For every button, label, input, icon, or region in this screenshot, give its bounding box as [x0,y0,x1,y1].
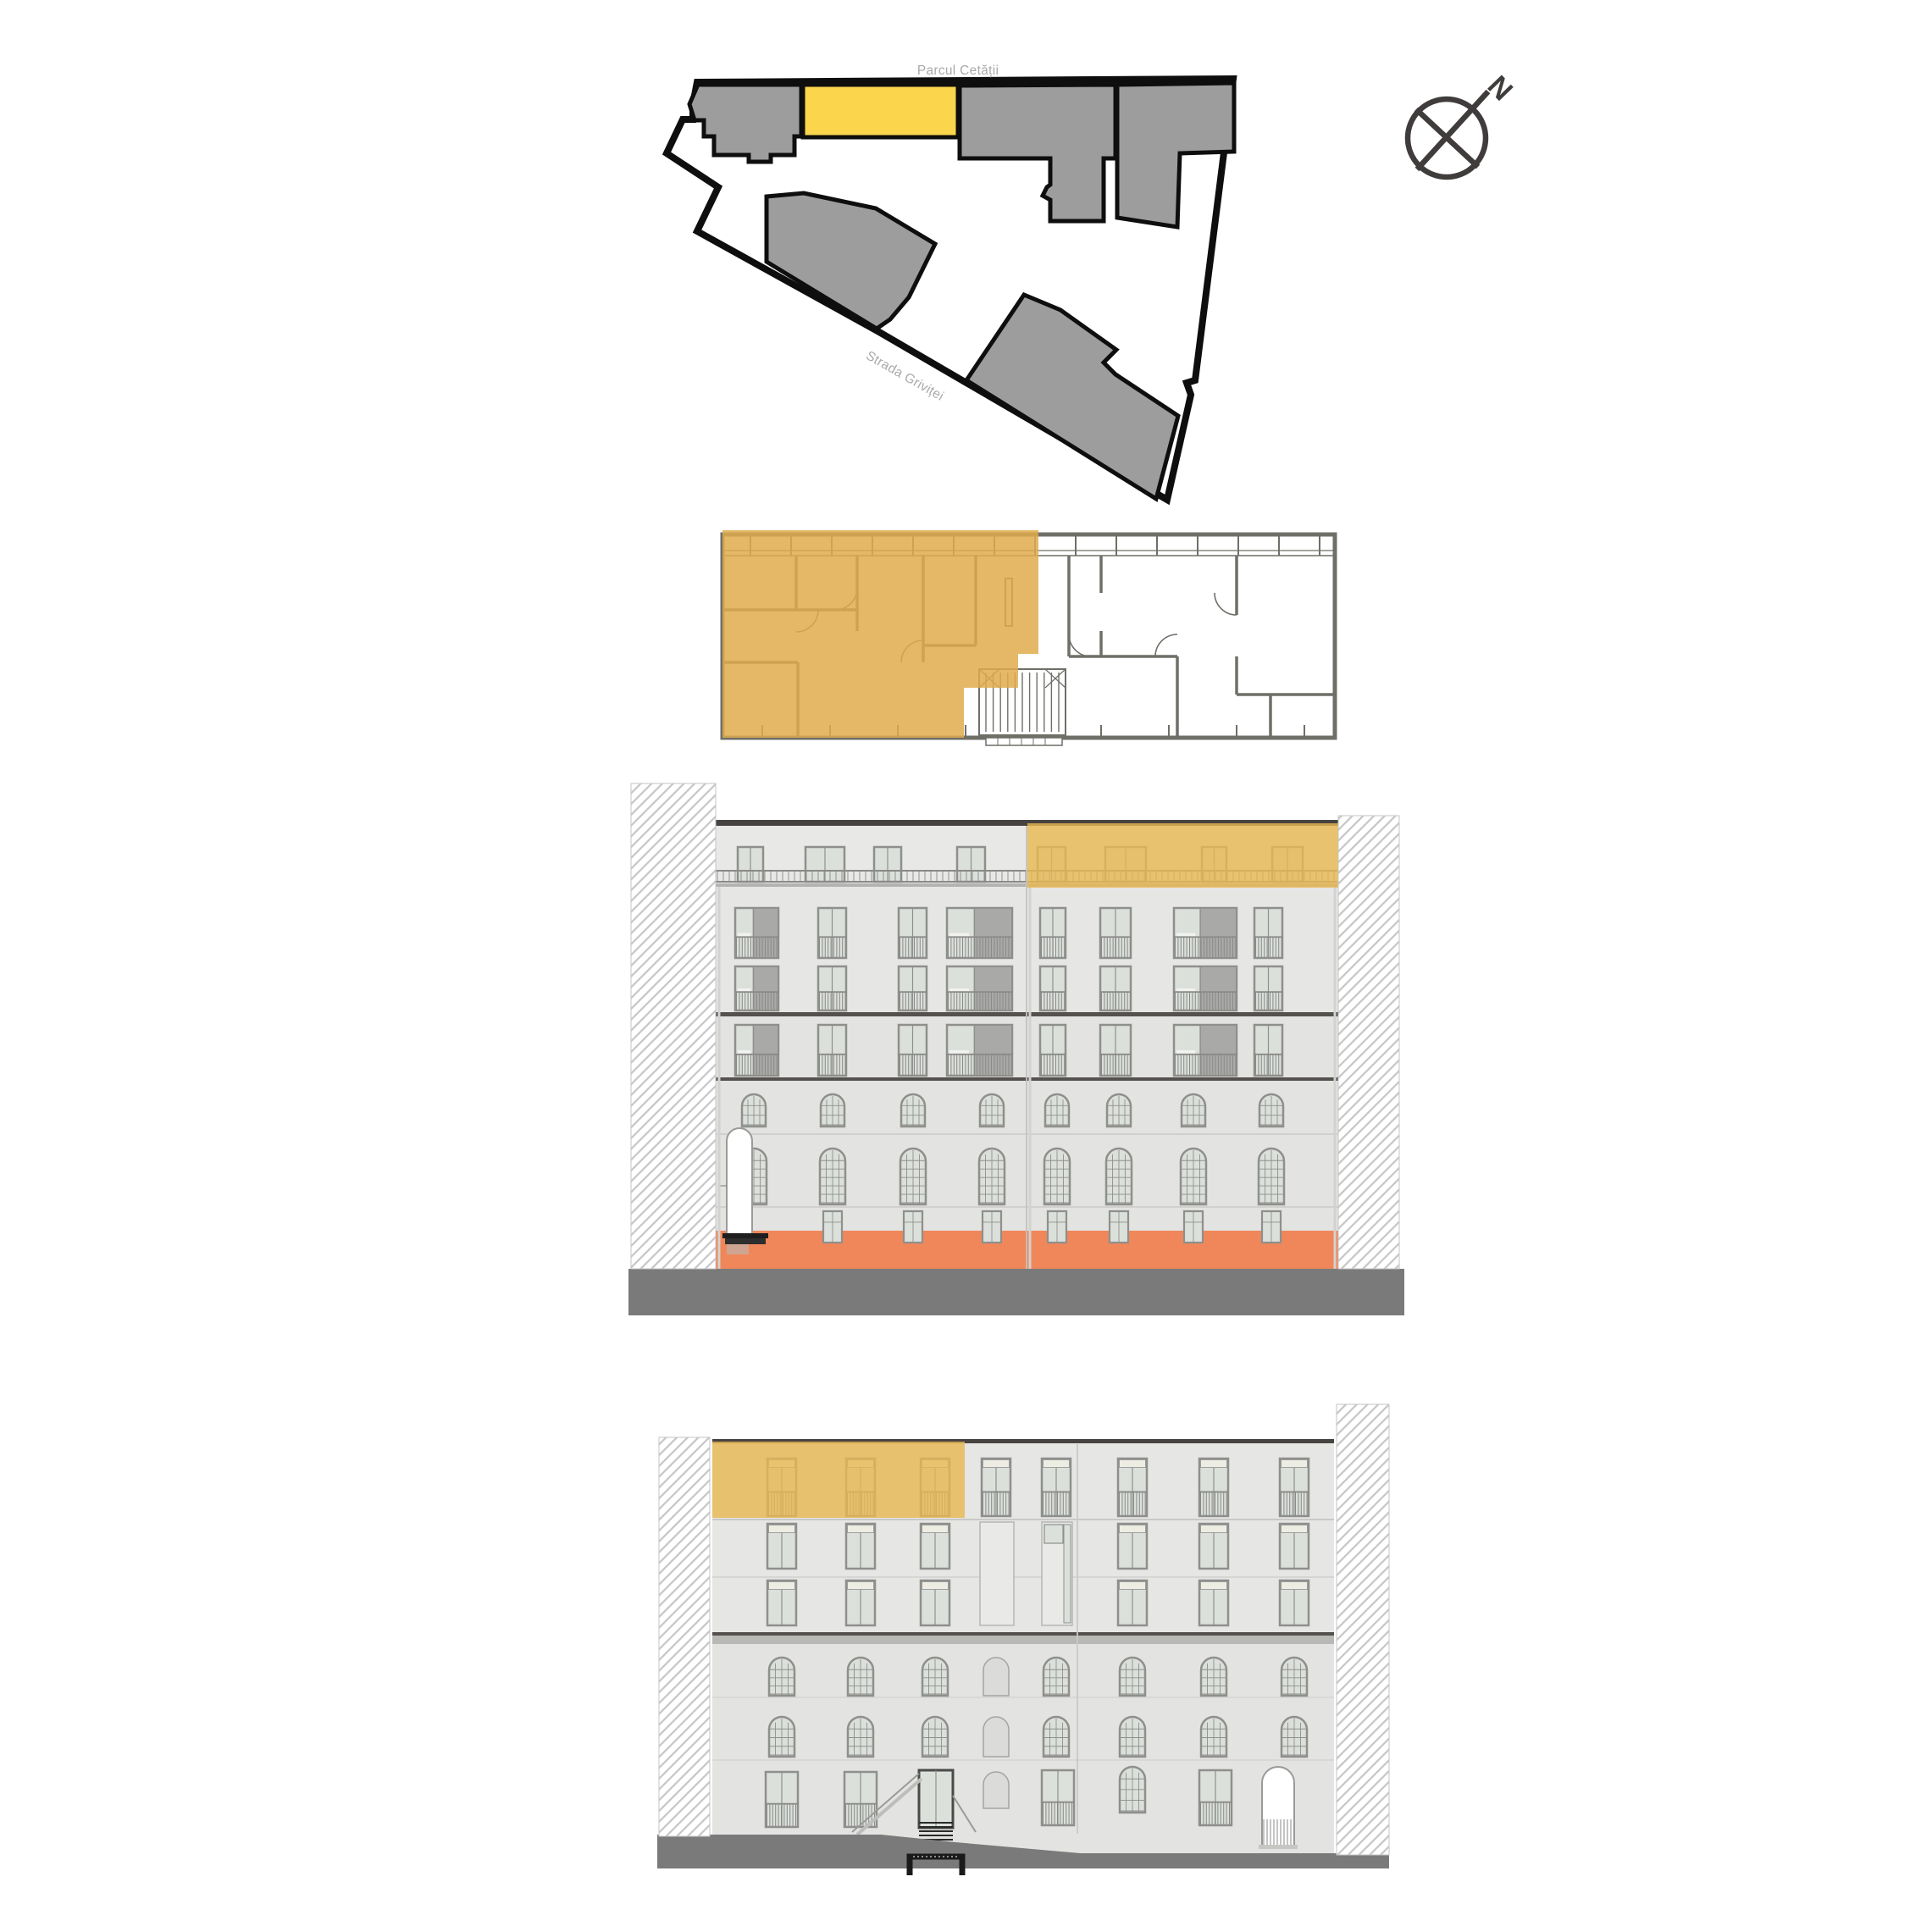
arched-window [900,1149,926,1204]
window [1199,1459,1229,1516]
window [1173,966,1237,1010]
window [1254,966,1283,1010]
window [734,1025,779,1076]
arched-window [1282,1717,1307,1757]
window [844,1772,877,1827]
arched-window [980,1094,1004,1127]
courtyard-elevation [657,1404,1389,1875]
north-letter: N [1481,69,1519,107]
window [921,1524,949,1569]
window [1254,1025,1283,1076]
arched-window [1044,1717,1069,1757]
arched-window [983,1658,1009,1696]
ground-line [628,1269,1404,1315]
window [817,1025,847,1076]
floor-plan [722,530,1335,745]
elevation-highlight-overlay [1027,823,1338,888]
window [981,1459,1011,1516]
arched-window [983,1717,1009,1757]
window [805,847,844,882]
site-plan-geometry [667,79,1234,500]
arched-window [922,1717,948,1757]
window [1254,908,1283,958]
window [1041,1459,1071,1516]
arched-window [1182,1094,1205,1127]
basement-window [904,1211,922,1243]
arched-window [1120,1767,1145,1813]
arched-window [979,1149,1005,1204]
window [1117,1459,1148,1516]
window [1199,1524,1228,1569]
basement-window [1262,1211,1281,1243]
window [946,1025,1013,1076]
party-wall-hatch [659,1437,710,1836]
window [1039,966,1066,1010]
arched-window [1201,1717,1226,1757]
arched-window [1282,1658,1307,1696]
arched-window [848,1658,873,1696]
arched-window [1259,1094,1283,1127]
elevation-highlight-overlay [712,1442,965,1518]
window [767,1524,796,1569]
window [946,966,1013,1010]
window [946,908,1013,958]
window [898,1025,927,1076]
window [874,847,901,882]
basement-window [1048,1211,1066,1243]
window [1173,1025,1237,1076]
window [734,908,779,958]
window [1099,966,1132,1010]
window [1099,908,1132,958]
arched-window [769,1717,794,1757]
arched-window [1259,1149,1284,1204]
arched-window [742,1094,766,1127]
window [921,1580,949,1625]
arched-window [983,1772,1009,1808]
window [1039,908,1066,958]
arched-window [820,1149,845,1204]
arched-window [1044,1658,1069,1696]
arched-window [1201,1658,1226,1696]
basement-window [983,1211,1001,1243]
window [1041,1770,1075,1825]
arched-window [769,1658,794,1696]
arched-window [922,1658,948,1696]
window [1099,1025,1132,1076]
window [765,1772,799,1827]
window [846,1580,875,1625]
street-elevation [628,783,1404,1315]
window [1199,1770,1232,1825]
park-label: Parcul Cetății [917,64,999,78]
window [1279,1459,1309,1516]
north-compass-icon: N [1408,69,1519,177]
arched-window [821,1094,844,1127]
window [898,966,927,1010]
window [767,1580,796,1625]
arched-window [1044,1149,1070,1204]
arched-window [1120,1658,1145,1696]
arched-window [1106,1149,1132,1204]
party-wall-hatch [631,783,716,1269]
window [1199,1580,1228,1625]
subject-building-highlight [803,85,958,137]
window [1039,1025,1066,1076]
site-plan: Parcul Cetății Strada Griviței [667,64,1234,500]
window [846,1524,875,1569]
facade-historic [712,1635,1334,1855]
basement-window [1184,1211,1203,1243]
party-wall-hatch [1337,1404,1389,1855]
arched-window [848,1717,873,1757]
window [1280,1580,1309,1625]
window [1118,1580,1147,1625]
arched-window [1107,1094,1131,1127]
arched-window [1181,1149,1206,1204]
arched-doorway [1259,1767,1298,1849]
window [1118,1524,1147,1569]
architectural-drawing: Parcul Cetății Strada Griviței N [0,0,1932,1932]
arched-window [1045,1094,1069,1127]
window [1280,1524,1309,1569]
arched-window [1120,1717,1145,1757]
basement-window [1110,1211,1128,1243]
party-wall-hatch [1338,816,1399,1269]
basement-window [823,1211,842,1243]
window [957,847,985,882]
window [817,966,847,1010]
window [898,908,927,958]
window [1173,908,1237,958]
window [817,908,847,958]
window [738,847,763,882]
window [734,966,779,1010]
drawing-sheet: Parcul Cetății Strada Griviței N [0,0,1932,1932]
arched-window [901,1094,925,1127]
